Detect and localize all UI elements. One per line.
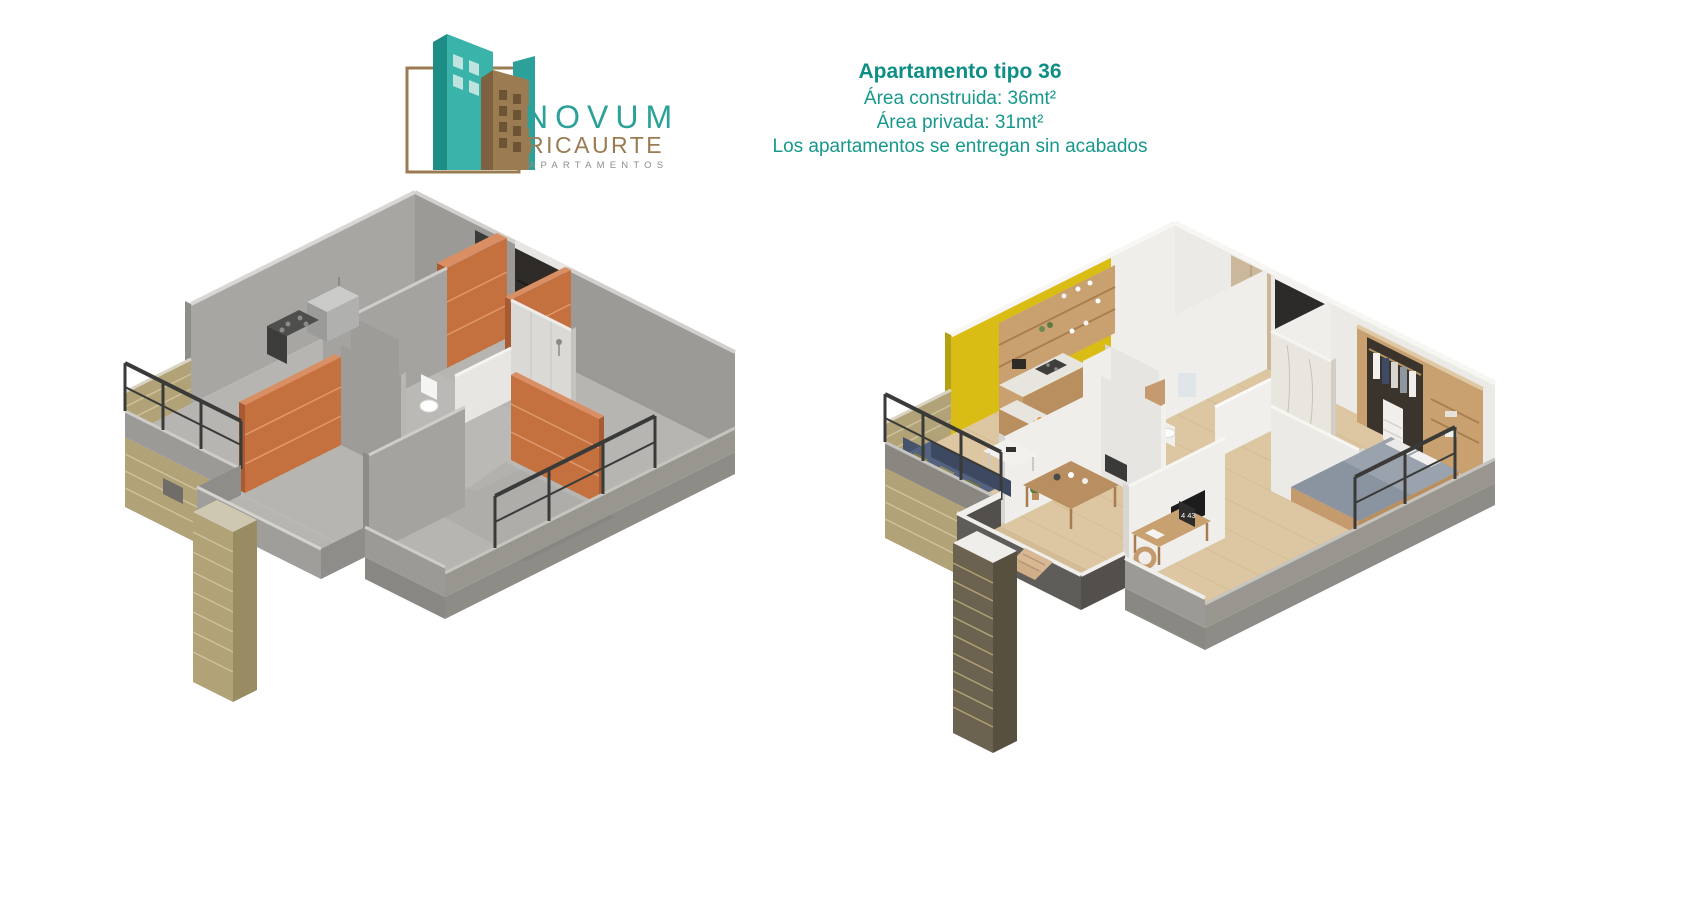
- mirror: [1178, 373, 1196, 397]
- floorplan-furnished-render: 4 43: [790, 213, 1535, 805]
- logo-buildings-icon: [407, 34, 535, 172]
- brick-pier: [953, 531, 1017, 753]
- logo-tagline-text: APARTAMENTOS: [529, 160, 668, 171]
- delivery-note-line: Los apartamentos se entregan sin acabado…: [640, 135, 1280, 159]
- desk-clock-text: 4 43: [1181, 511, 1196, 520]
- area-built-line: Área construida: 36mt²: [640, 87, 1280, 111]
- area-private-line: Área privada: 31mt²: [640, 111, 1280, 135]
- brick-pier: [193, 500, 257, 702]
- apartment-type-title: Apartamento tipo 36: [640, 60, 1280, 84]
- floorplan-unfinished-render: [55, 182, 755, 748]
- apartment-info-header: Apartamento tipo 36 Área construida: 36m…: [640, 60, 1280, 159]
